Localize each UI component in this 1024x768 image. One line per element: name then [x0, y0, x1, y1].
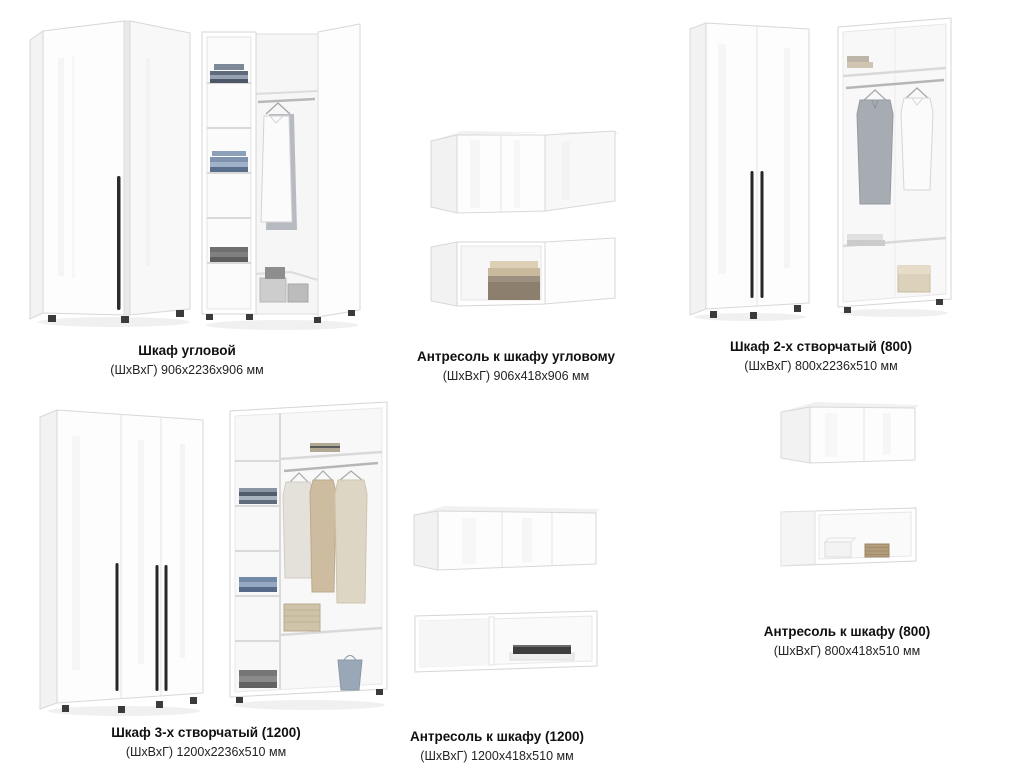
product-name: Шкаф угловой	[47, 343, 327, 360]
product-label-wardrobe-2-door: Шкаф 2-х створчатый (800) (ШхВхГ) 800х22…	[681, 339, 961, 374]
wardrobe-3-door-closed-image	[38, 400, 206, 720]
product-dimensions: (ШхВхГ) 1200х2236х510 мм	[56, 744, 356, 760]
product-name: Антресоль к шкафу (1200)	[357, 729, 637, 746]
product-label-mezzanine-800: Антресоль к шкафу (800) (ШхВхГ) 800х418х…	[707, 624, 987, 659]
mezzanine-800-closed-drawing	[779, 397, 919, 469]
wardrobe-3-door-closed-drawing	[38, 400, 206, 720]
mezzanine-800-closed-image	[779, 397, 919, 469]
corner-wardrobe-closed-drawing	[26, 16, 194, 332]
mezzanine-1200-closed-drawing	[412, 502, 600, 576]
wardrobe-2-door-open-drawing	[834, 12, 956, 324]
wardrobe-3-door-open-drawing	[226, 396, 392, 714]
product-label-wardrobe-3-door: Шкаф 3-х створчатый (1200) (ШхВхГ) 1200х…	[56, 725, 356, 760]
product-name: Антресоль к шкафу (800)	[707, 624, 987, 641]
product-name: Шкаф 3-х створчатый (1200)	[56, 725, 356, 742]
corner-wardrobe-open-drawing	[196, 20, 364, 334]
product-label-mezzanine-1200: Антресоль к шкафу (1200) (ШхВхГ) 1200х41…	[357, 729, 637, 764]
product-dimensions: (ШхВхГ) 1200х418х510 мм	[357, 748, 637, 764]
corner-mezzanine-open-image	[428, 234, 618, 312]
corner-mezzanine-closed-drawing	[428, 126, 618, 218]
product-label-corner-mezzanine: Антресоль к шкафу угловому (ШхВхГ) 906х4…	[366, 349, 666, 384]
corner-mezzanine-open-drawing	[428, 234, 618, 312]
wardrobe-3-door-open-image	[226, 396, 392, 714]
mezzanine-800-open-image	[779, 502, 919, 571]
wardrobe-2-door-closed-image	[688, 14, 812, 326]
product-label-corner-wardrobe: Шкаф угловой (ШхВхГ) 906х2236х906 мм	[47, 343, 327, 378]
catalog-page: Шкаф угловой (ШхВхГ) 906х2236х906 мм	[0, 0, 1024, 768]
product-name: Шкаф 2-х створчатый (800)	[681, 339, 961, 356]
corner-wardrobe-open-image	[196, 20, 364, 334]
mezzanine-800-open-drawing	[779, 502, 919, 571]
product-dimensions: (ШхВхГ) 800х2236х510 мм	[681, 358, 961, 374]
mezzanine-1200-open-drawing	[412, 606, 600, 678]
product-dimensions: (ШхВхГ) 906х418х906 мм	[366, 368, 666, 384]
product-dimensions: (ШхВхГ) 800х418х510 мм	[707, 643, 987, 659]
product-name: Антресоль к шкафу угловому	[366, 349, 666, 366]
corner-mezzanine-closed-image	[428, 126, 618, 218]
mezzanine-1200-open-image	[412, 606, 600, 678]
wardrobe-2-door-open-image	[834, 12, 956, 324]
corner-wardrobe-closed-image	[26, 16, 194, 332]
wardrobe-2-door-closed-drawing	[688, 14, 812, 326]
product-dimensions: (ШхВхГ) 906х2236х906 мм	[47, 362, 327, 378]
mezzanine-1200-closed-image	[412, 502, 600, 576]
